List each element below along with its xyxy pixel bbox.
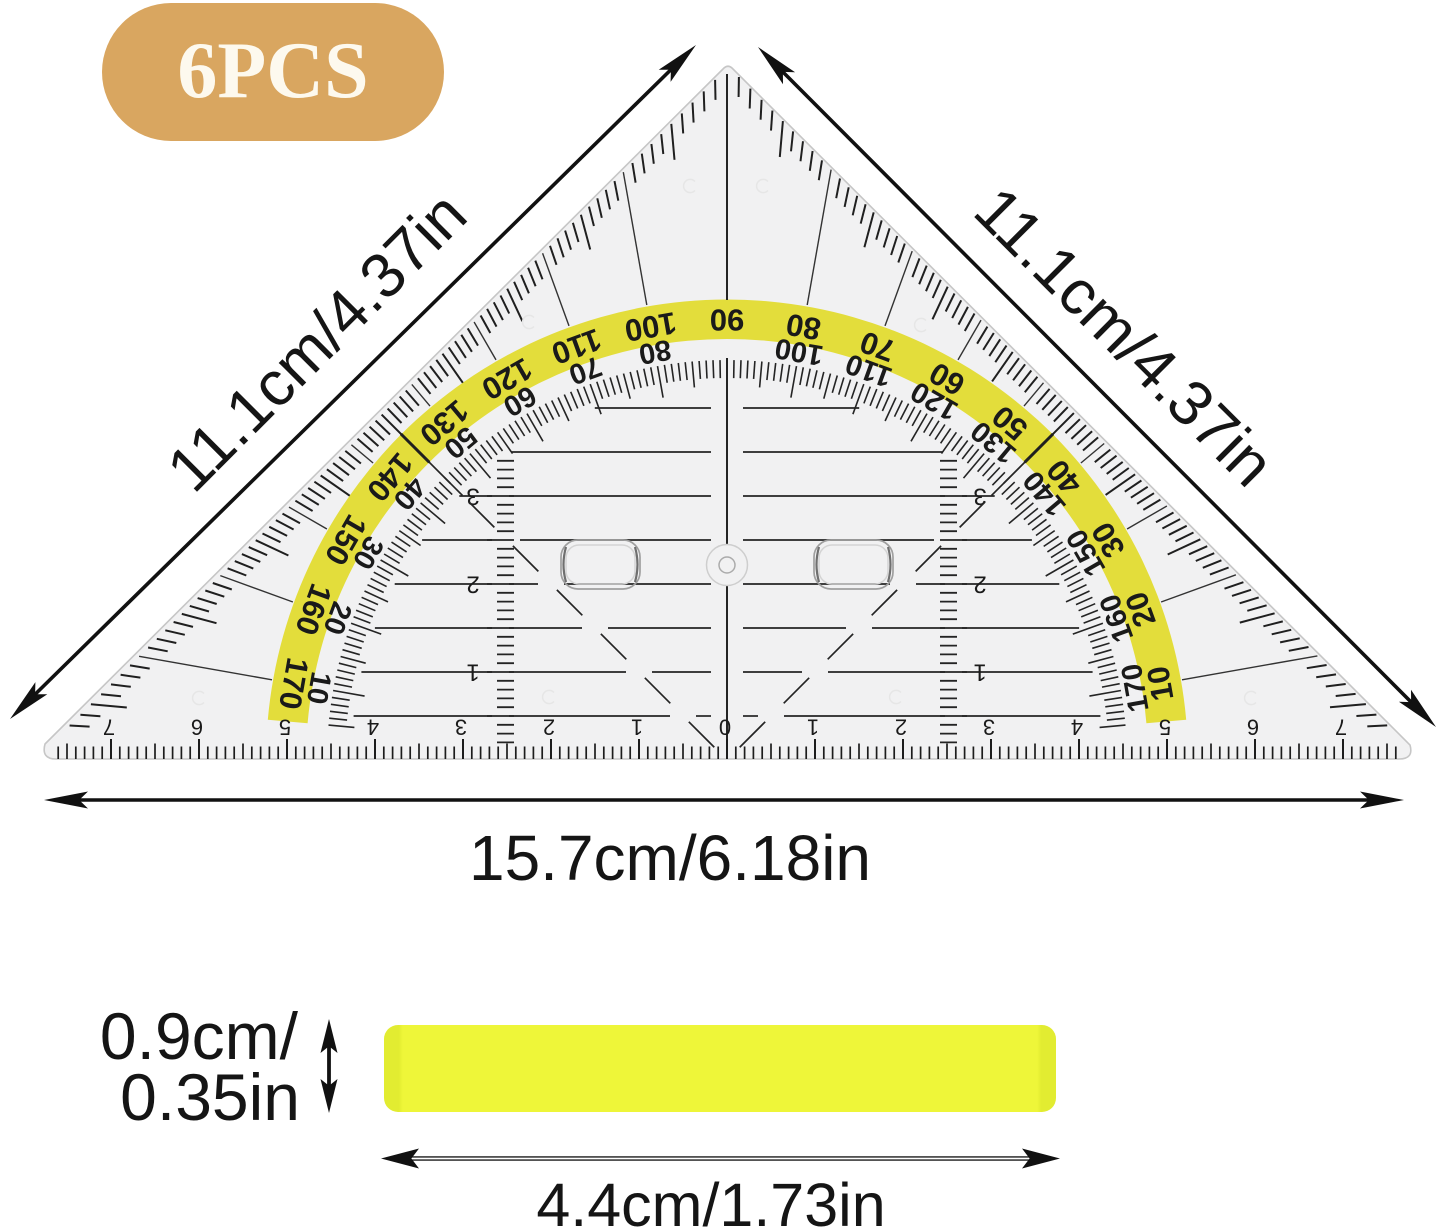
- svg-text:6: 6: [1247, 715, 1259, 740]
- svg-text:2: 2: [543, 715, 555, 740]
- svg-text:4.4cm/1.73in: 4.4cm/1.73in: [536, 1171, 885, 1231]
- svg-text:15.7cm/6.18in: 15.7cm/6.18in: [469, 822, 871, 894]
- svg-text:80: 80: [636, 333, 673, 370]
- svg-text:10: 10: [300, 669, 337, 706]
- svg-text:7: 7: [103, 715, 115, 740]
- svg-text:1: 1: [973, 659, 986, 686]
- svg-text:5: 5: [1159, 715, 1171, 740]
- svg-text:0.35in: 0.35in: [120, 1060, 300, 1134]
- svg-text:3: 3: [983, 715, 995, 740]
- svg-text:90: 90: [710, 303, 744, 338]
- svg-text:4: 4: [1071, 715, 1083, 740]
- svg-text:1: 1: [466, 659, 479, 686]
- svg-text:0: 0: [719, 715, 731, 740]
- svg-text:3: 3: [455, 715, 467, 740]
- svg-text:6PCS: 6PCS: [177, 27, 368, 115]
- svg-text:4: 4: [367, 715, 379, 740]
- svg-text:5: 5: [279, 715, 291, 740]
- svg-text:7: 7: [1335, 715, 1347, 740]
- svg-text:3: 3: [973, 483, 986, 510]
- svg-text:1: 1: [631, 715, 643, 740]
- svg-text:2: 2: [895, 715, 907, 740]
- svg-text:2: 2: [973, 571, 986, 598]
- svg-text:2: 2: [466, 571, 479, 598]
- svg-text:6: 6: [191, 715, 203, 740]
- svg-text:1: 1: [807, 715, 819, 740]
